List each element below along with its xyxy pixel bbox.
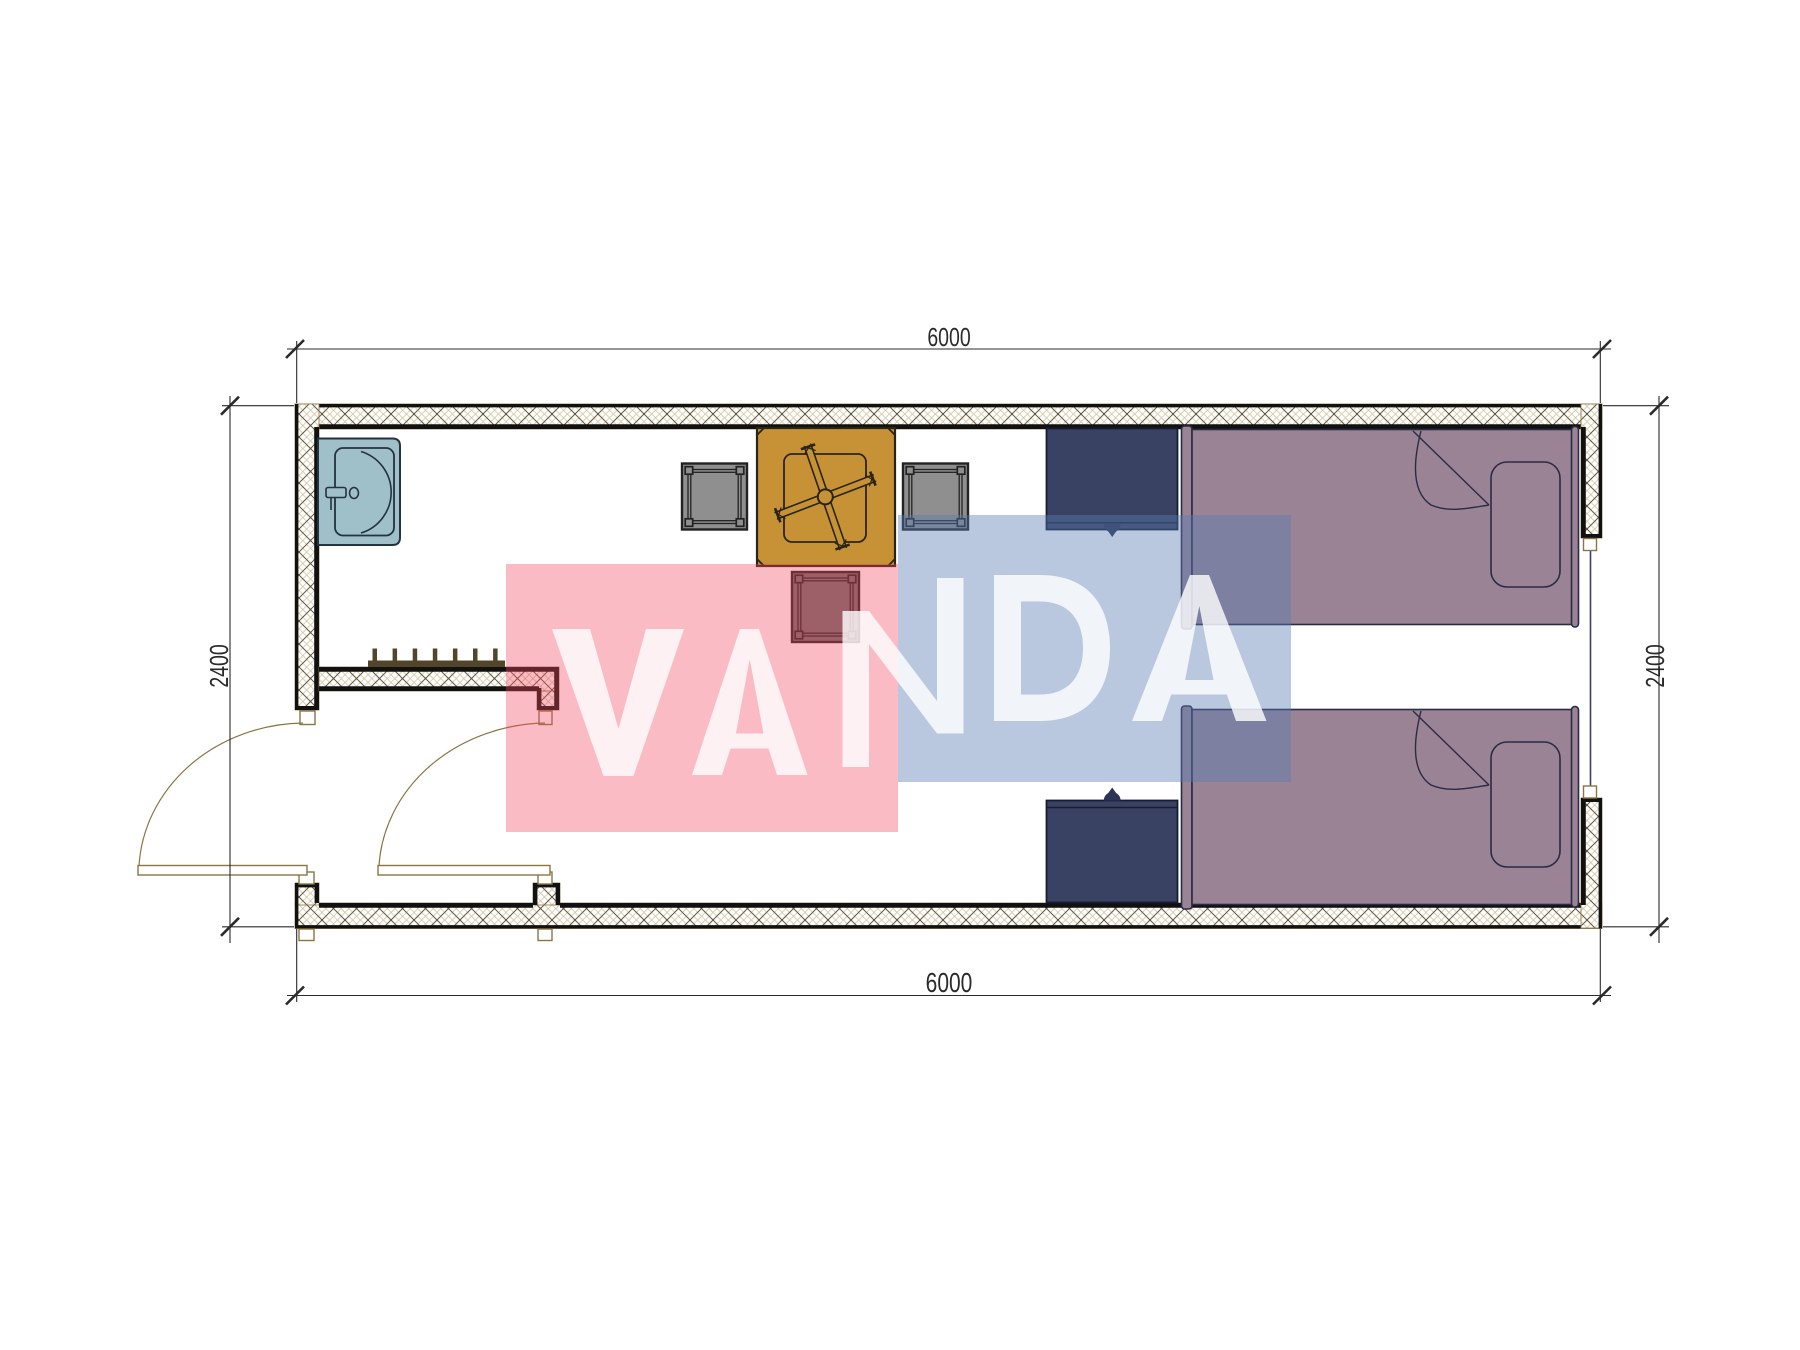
svg-text:2400: 2400 <box>204 644 233 687</box>
svg-text:2400: 2400 <box>1640 644 1669 687</box>
svg-text:6000: 6000 <box>926 968 973 999</box>
svg-text:6000: 6000 <box>927 322 970 351</box>
